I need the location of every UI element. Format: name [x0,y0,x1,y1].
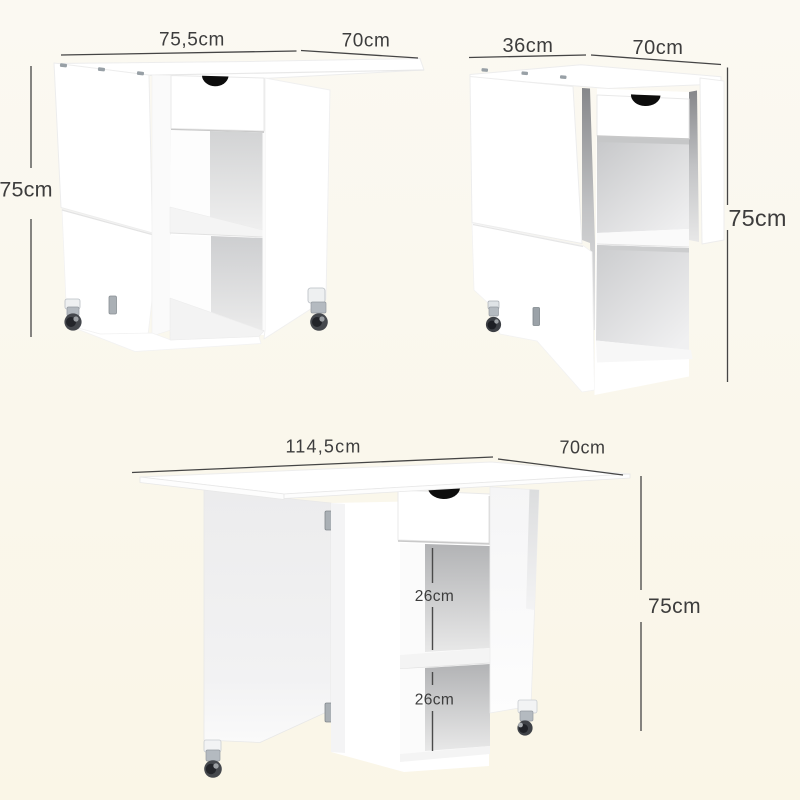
svg-text:75cm: 75cm [728,205,786,231]
svg-text:114,5cm: 114,5cm [285,437,361,457]
svg-text:75,5cm: 75,5cm [159,30,225,51]
svg-text:70cm: 70cm [559,438,605,458]
svg-text:36cm: 36cm [503,35,554,57]
svg-text:75cm: 75cm [0,178,53,202]
svg-text:70cm: 70cm [342,31,391,52]
svg-text:26cm: 26cm [415,588,455,605]
svg-text:70cm: 70cm [633,37,684,59]
svg-text:75cm: 75cm [648,595,701,618]
svg-text:26cm: 26cm [415,692,455,709]
